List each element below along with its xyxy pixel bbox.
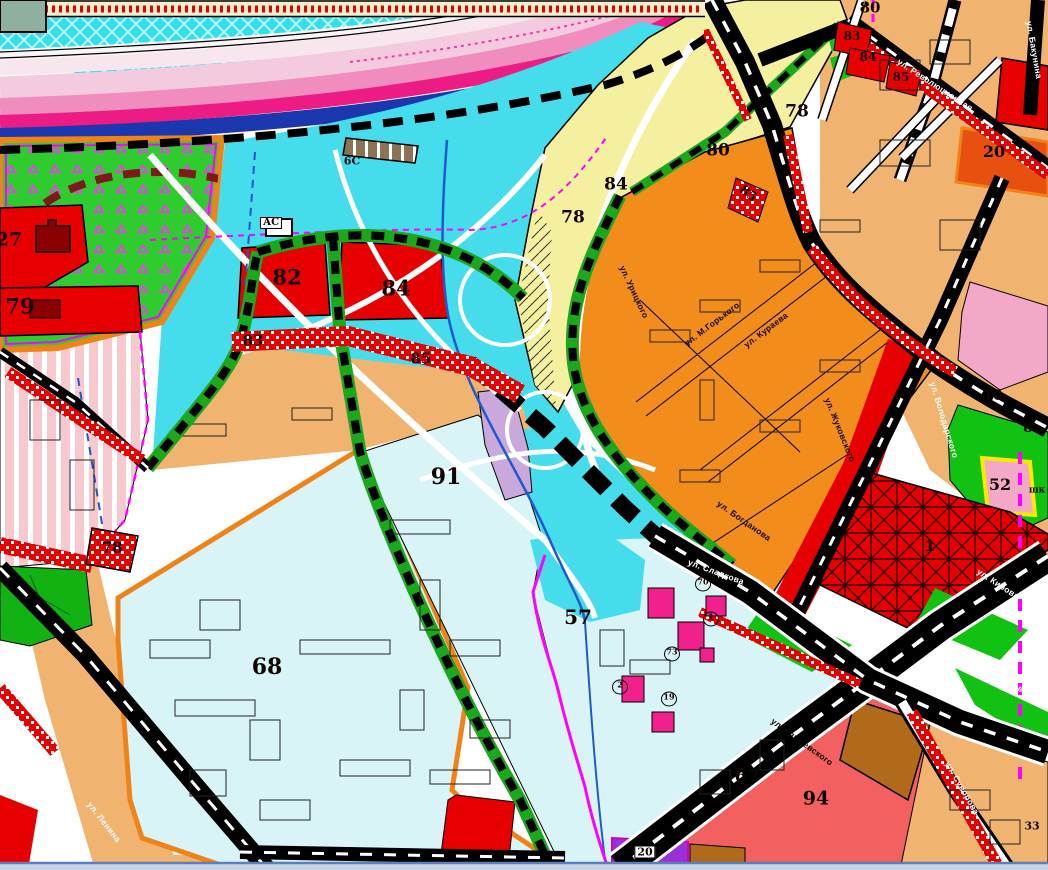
zoning-map[interactable]: 8284838579277868915767947884807880838485… bbox=[0, 0, 1048, 870]
bottom-edge-bar bbox=[0, 862, 1048, 870]
map-canvas[interactable] bbox=[0, 0, 1048, 870]
